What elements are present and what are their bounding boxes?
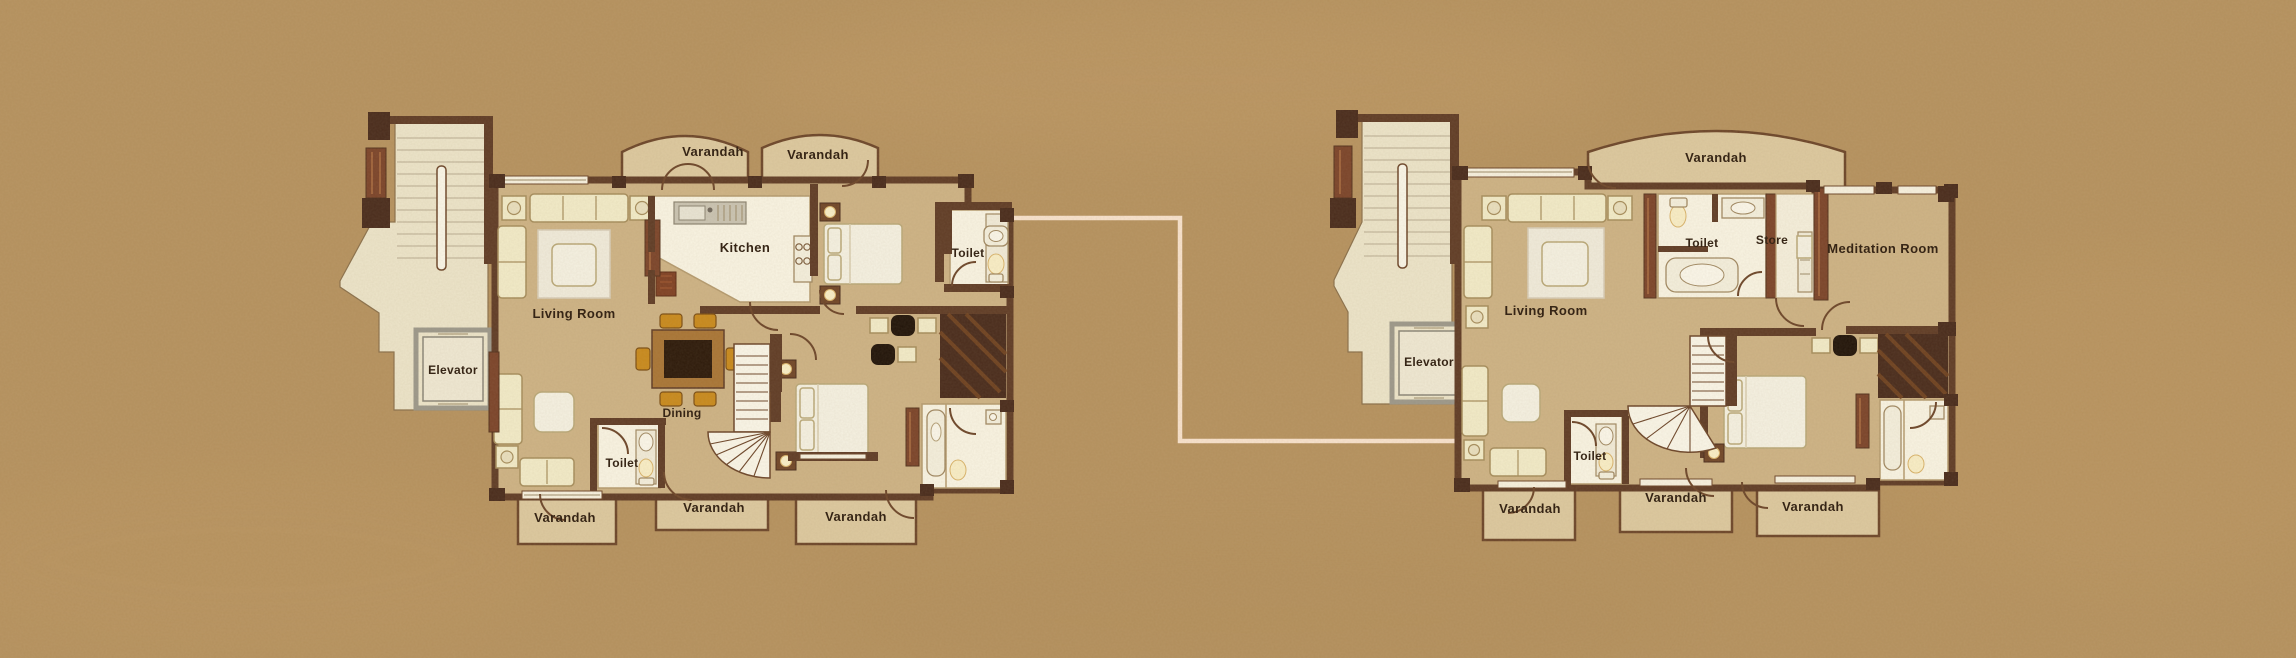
floor-plans-canvas: Varandah Varandah Kitchen Toilet Living … [0, 0, 2296, 658]
floor-plan-page: Varandah Varandah Kitchen Toilet Living … [0, 0, 2296, 658]
grain-texture-light [0, 0, 2296, 658]
